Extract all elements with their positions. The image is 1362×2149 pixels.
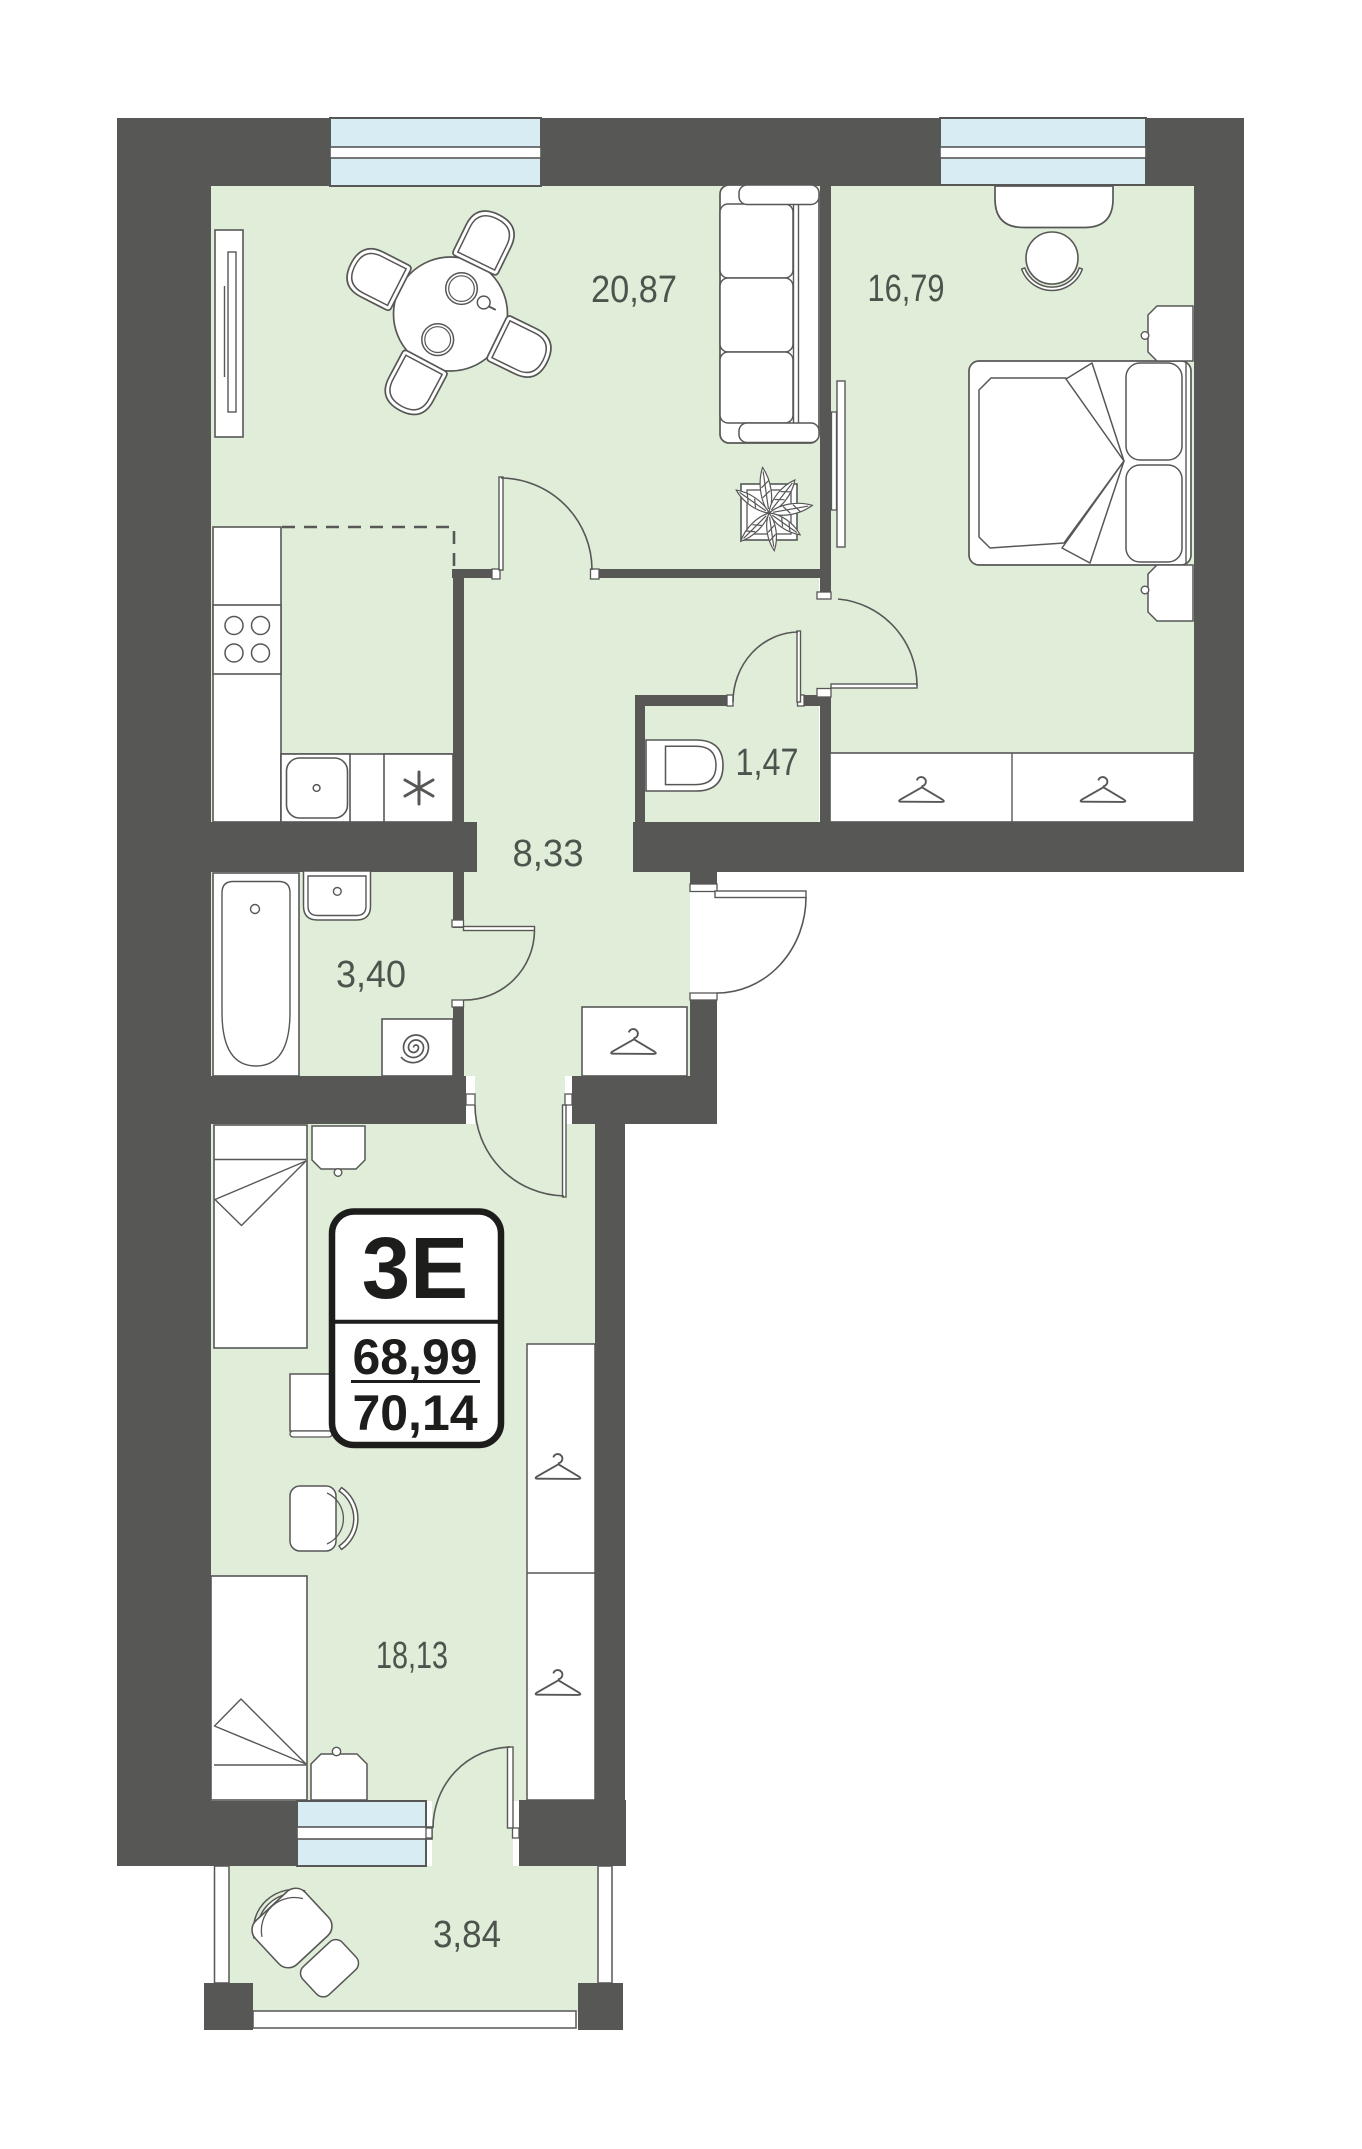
svg-text:3,40: 3,40 xyxy=(336,954,406,996)
svg-text:20,87: 20,87 xyxy=(591,269,677,311)
svg-text:1,47: 1,47 xyxy=(736,742,799,784)
svg-text:3Е: 3Е xyxy=(362,1220,468,1317)
svg-text:70,14: 70,14 xyxy=(352,1385,477,1441)
svg-text:8,33: 8,33 xyxy=(513,833,584,875)
svg-text:16,79: 16,79 xyxy=(868,268,945,310)
svg-text:18,13: 18,13 xyxy=(376,1635,448,1677)
svg-text:68,99: 68,99 xyxy=(352,1329,477,1385)
svg-text:3,84: 3,84 xyxy=(433,1914,501,1956)
